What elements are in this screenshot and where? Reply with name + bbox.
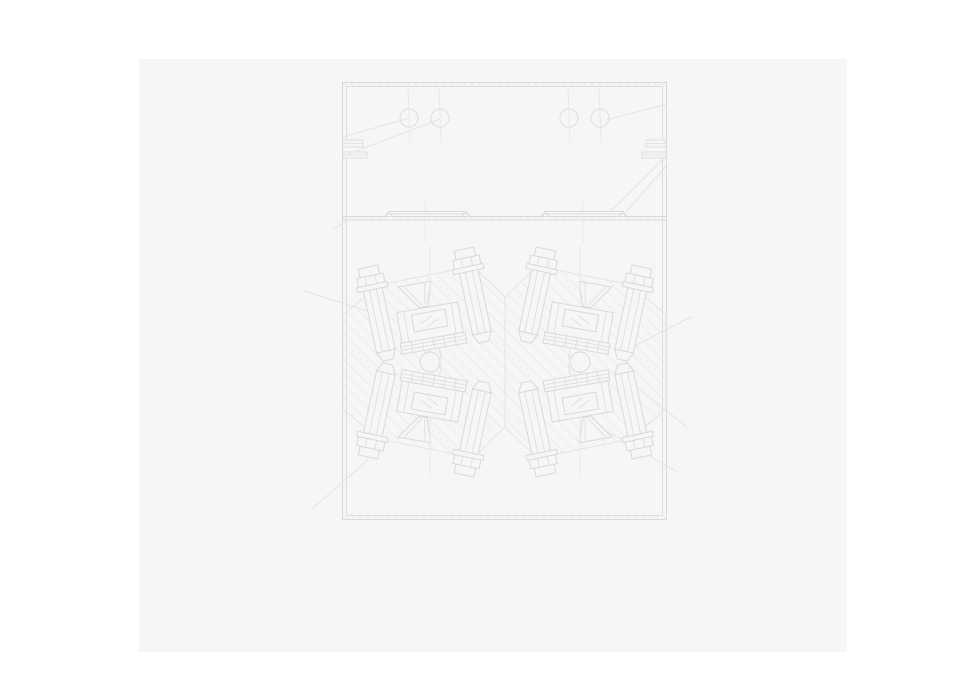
flange-notches — [343, 140, 666, 158]
hole-centerline — [568, 88, 570, 142]
section-body — [343, 266, 666, 458]
hole-centerline — [408, 88, 410, 142]
hole-centerline — [439, 88, 441, 142]
pivot-circle — [570, 352, 590, 372]
top-hole-circles — [400, 88, 609, 142]
pivot-circle — [420, 352, 440, 372]
leader-line — [611, 156, 666, 211]
hole-centerline — [599, 88, 601, 142]
leader-line — [343, 119, 440, 156]
cad-drawing — [139, 59, 847, 652]
mid-divider-plate — [343, 217, 666, 221]
cad-canvas-panel — [139, 59, 847, 652]
page-root — [0, 0, 961, 694]
leader-line — [312, 459, 369, 509]
leader-line — [333, 220, 348, 229]
leader-line — [607, 104, 666, 120]
